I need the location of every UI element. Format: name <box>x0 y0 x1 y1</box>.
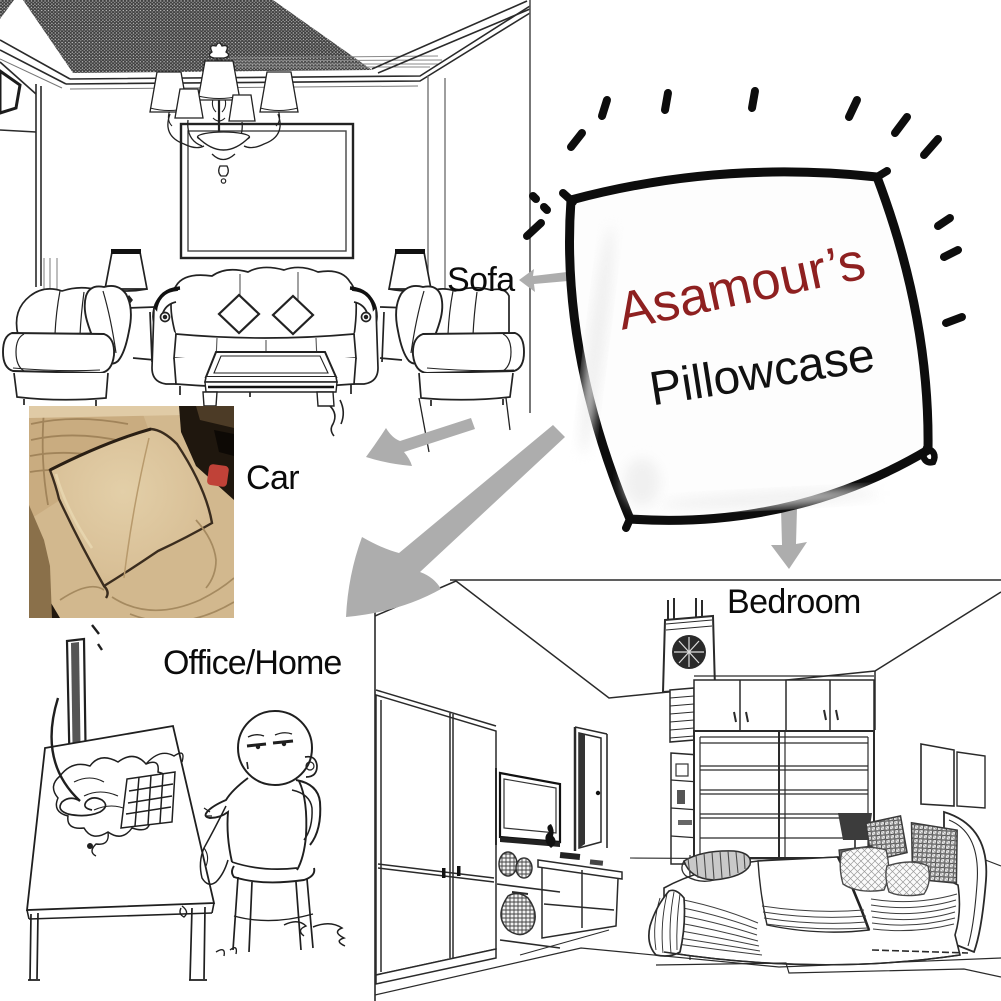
svg-text:Office/Home: Office/Home <box>163 644 341 682</box>
svg-text:Car: Car <box>246 459 299 497</box>
svg-text:Sofa: Sofa <box>447 261 515 299</box>
svg-text:Bedroom: Bedroom <box>727 583 861 621</box>
